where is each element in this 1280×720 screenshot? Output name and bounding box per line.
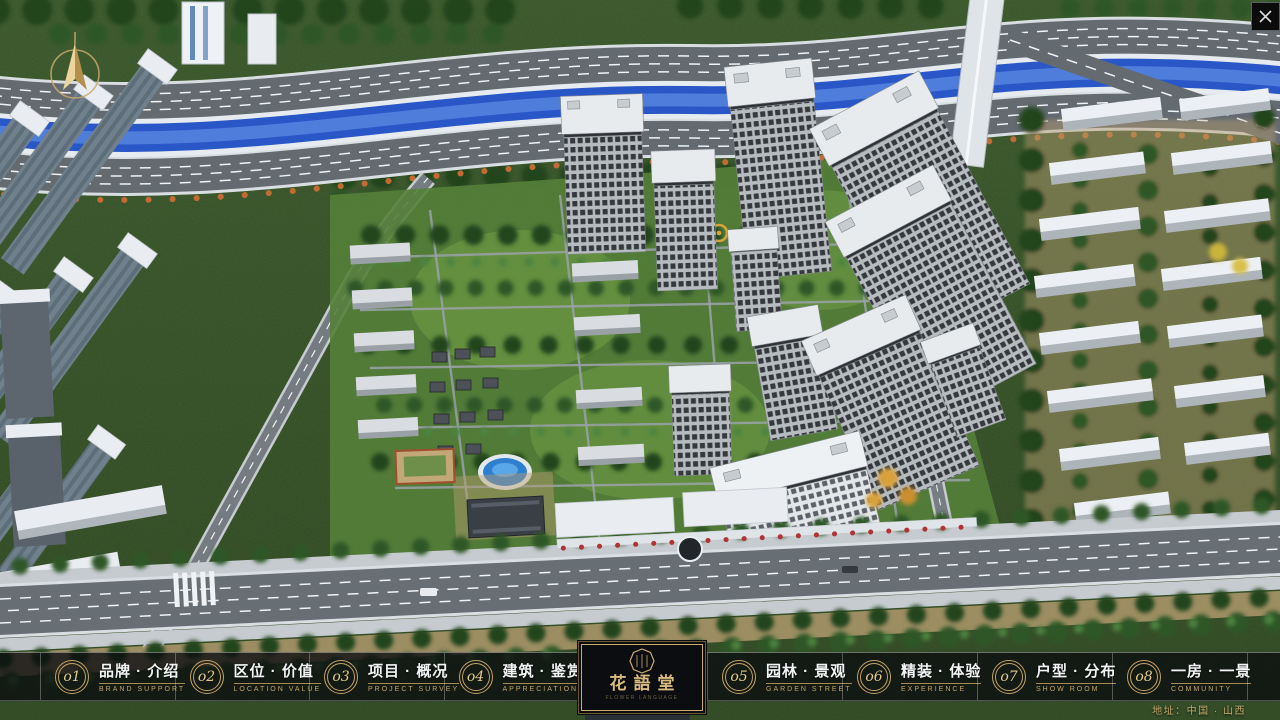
nav-number: o3	[332, 669, 349, 685]
nav-label-zh: 区位 · 价值	[234, 660, 322, 681]
nav-number: o5	[730, 669, 747, 685]
nav-number: o7	[1000, 669, 1017, 685]
nav-number-badge: o3	[324, 660, 358, 694]
nav-number: o2	[198, 669, 215, 685]
project-address: 地址：中国 · 山西	[1152, 702, 1246, 717]
gold-divider	[234, 683, 322, 684]
compass-north-icon	[46, 28, 104, 117]
nav-number-badge: o4	[459, 660, 493, 694]
nav-number: o4	[467, 669, 484, 685]
project-logo[interactable]: 花語堂 FLOWER LANGUAGE	[578, 641, 706, 714]
gold-divider	[1036, 683, 1116, 684]
gold-divider	[99, 683, 185, 684]
close-button[interactable]	[1251, 2, 1280, 31]
gold-divider	[766, 683, 852, 684]
nav-number-badge: o6	[857, 660, 891, 694]
nav-label-zh: 园林 · 景观	[766, 660, 852, 681]
nav-label-zh: 一房 · 一景	[1171, 660, 1251, 681]
gold-divider	[503, 683, 583, 684]
nav-label-en: EXPERIENCE	[901, 686, 981, 693]
nav-label-en: COMMUNITY	[1171, 686, 1251, 693]
project-name: 花語堂	[603, 674, 682, 694]
nav-number: o8	[1135, 669, 1152, 685]
close-icon	[1259, 10, 1272, 23]
presentation-stage: o1 品牌 · 介绍BRAND SUPPORT o2 区位 · 价值LOCATI…	[0, 0, 1280, 720]
masterplan-render	[0, 0, 1280, 720]
nav-label-en: APPRECIATION	[503, 686, 583, 693]
nav-number-badge: o2	[190, 660, 224, 694]
nav-label-zh: 建筑 · 鉴赏	[503, 660, 583, 681]
gold-divider	[901, 683, 981, 684]
nav-item-interior-experience[interactable]: o6 精装 · 体验EXPERIENCE	[842, 653, 977, 700]
nav-number: o6	[865, 669, 882, 685]
nav-item-location-value[interactable]: o2 区位 · 价值LOCATION VALUE	[175, 653, 310, 700]
nav-item-garden-landscape[interactable]: o5 园林 · 景观GARDEN STREET	[707, 653, 842, 700]
nav-item-brand-intro[interactable]: o1 品牌 · 介绍BRAND SUPPORT	[40, 653, 175, 700]
clubhouse	[453, 471, 556, 540]
project-name-en: FLOWER LANGUAGE	[605, 695, 678, 701]
entrance-plaza	[678, 537, 702, 561]
gold-divider	[1171, 683, 1251, 684]
nav-number-badge: o7	[992, 660, 1026, 694]
nav-label-zh: 户型 · 分布	[1036, 660, 1116, 681]
nav-label-en: SHOW ROOM	[1036, 686, 1116, 693]
nav-label-zh: 品牌 · 介绍	[99, 660, 185, 681]
nav-item-project-survey[interactable]: o3 项目 · 概况PROJECT SURVEY	[309, 653, 444, 700]
nav-item-room-view[interactable]: o8 一房 · 一景COMMUNITY	[1112, 653, 1247, 700]
nav-number: o1	[63, 669, 80, 685]
octagonal-seal-icon	[629, 648, 655, 674]
nav-label-en: GARDEN STREET	[766, 686, 852, 693]
nav-label-en: LOCATION VALUE	[234, 686, 322, 693]
nav-label-en: BRAND SUPPORT	[99, 686, 185, 693]
nav-item-architecture[interactable]: o4 建筑 · 鉴赏APPRECIATION	[444, 653, 579, 700]
nav-number-badge: o5	[722, 660, 756, 694]
nav-number-badge: o1	[55, 660, 89, 694]
nav-end-divider	[1247, 653, 1248, 700]
nav-item-floorplans[interactable]: o7 户型 · 分布SHOW ROOM	[977, 653, 1112, 700]
right-district-buildings	[1025, 88, 1275, 560]
nav-label-zh: 精装 · 体验	[901, 660, 981, 681]
nav-number-badge: o8	[1127, 660, 1161, 694]
